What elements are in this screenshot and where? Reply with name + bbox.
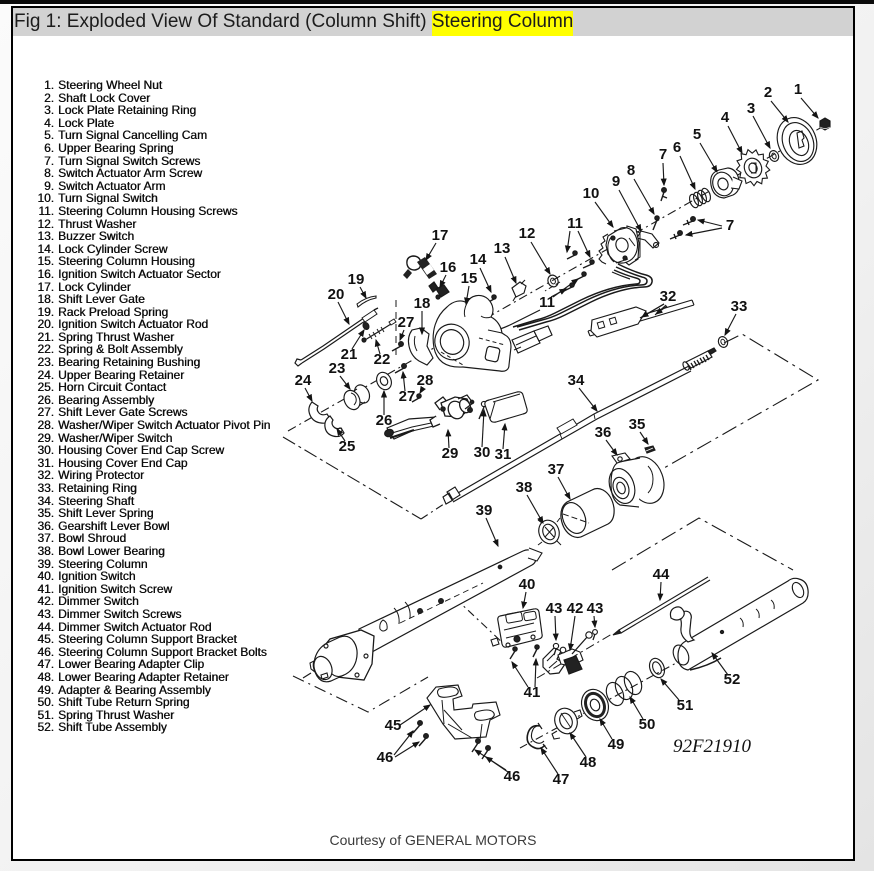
svg-text:42: 42 xyxy=(567,600,584,617)
svg-text:43: 43 xyxy=(546,600,563,617)
svg-text:28: 28 xyxy=(417,372,434,389)
svg-text:10: 10 xyxy=(583,185,600,202)
svg-text:29: 29 xyxy=(442,445,459,462)
svg-text:7: 7 xyxy=(659,146,667,163)
svg-text:32: 32 xyxy=(660,288,677,305)
svg-text:13: 13 xyxy=(494,240,511,257)
svg-text:15: 15 xyxy=(461,270,478,287)
svg-text:49: 49 xyxy=(608,736,625,753)
svg-text:1: 1 xyxy=(794,81,802,98)
svg-text:44: 44 xyxy=(653,566,670,583)
svg-text:16: 16 xyxy=(440,259,457,276)
svg-text:14: 14 xyxy=(470,251,487,268)
svg-text:34: 34 xyxy=(568,372,585,389)
svg-text:22: 22 xyxy=(374,351,391,368)
svg-text:17: 17 xyxy=(432,227,449,244)
svg-text:39: 39 xyxy=(476,502,493,519)
svg-text:11: 11 xyxy=(567,215,583,232)
svg-text:40: 40 xyxy=(519,576,536,593)
svg-text:9: 9 xyxy=(612,173,620,190)
svg-text:36: 36 xyxy=(595,424,612,441)
svg-text:25: 25 xyxy=(339,438,356,455)
svg-text:46: 46 xyxy=(377,749,394,766)
svg-text:5: 5 xyxy=(693,126,701,143)
svg-text:45: 45 xyxy=(385,717,402,734)
svg-text:23: 23 xyxy=(329,360,346,377)
svg-text:92F21910: 92F21910 xyxy=(673,736,752,757)
svg-text:35: 35 xyxy=(629,416,646,433)
svg-text:38: 38 xyxy=(516,479,533,496)
svg-text:18: 18 xyxy=(414,295,431,312)
svg-text:48: 48 xyxy=(580,754,597,771)
svg-text:43: 43 xyxy=(587,600,604,617)
svg-text:20: 20 xyxy=(328,286,345,303)
svg-text:47: 47 xyxy=(553,771,570,788)
svg-text:2: 2 xyxy=(764,84,772,101)
svg-text:7: 7 xyxy=(726,217,734,234)
svg-text:12: 12 xyxy=(519,225,536,242)
svg-text:37: 37 xyxy=(548,461,565,478)
svg-text:19: 19 xyxy=(348,271,365,288)
svg-text:4: 4 xyxy=(721,109,730,126)
svg-text:24: 24 xyxy=(295,372,312,389)
svg-text:3: 3 xyxy=(747,100,755,117)
svg-text:27: 27 xyxy=(398,314,415,331)
svg-text:52: 52 xyxy=(724,671,741,688)
svg-text:41: 41 xyxy=(524,684,541,701)
svg-text:33: 33 xyxy=(731,298,748,315)
svg-text:50: 50 xyxy=(639,716,656,733)
svg-text:8: 8 xyxy=(627,162,635,179)
svg-text:27: 27 xyxy=(399,388,416,405)
svg-text:6: 6 xyxy=(673,139,681,156)
